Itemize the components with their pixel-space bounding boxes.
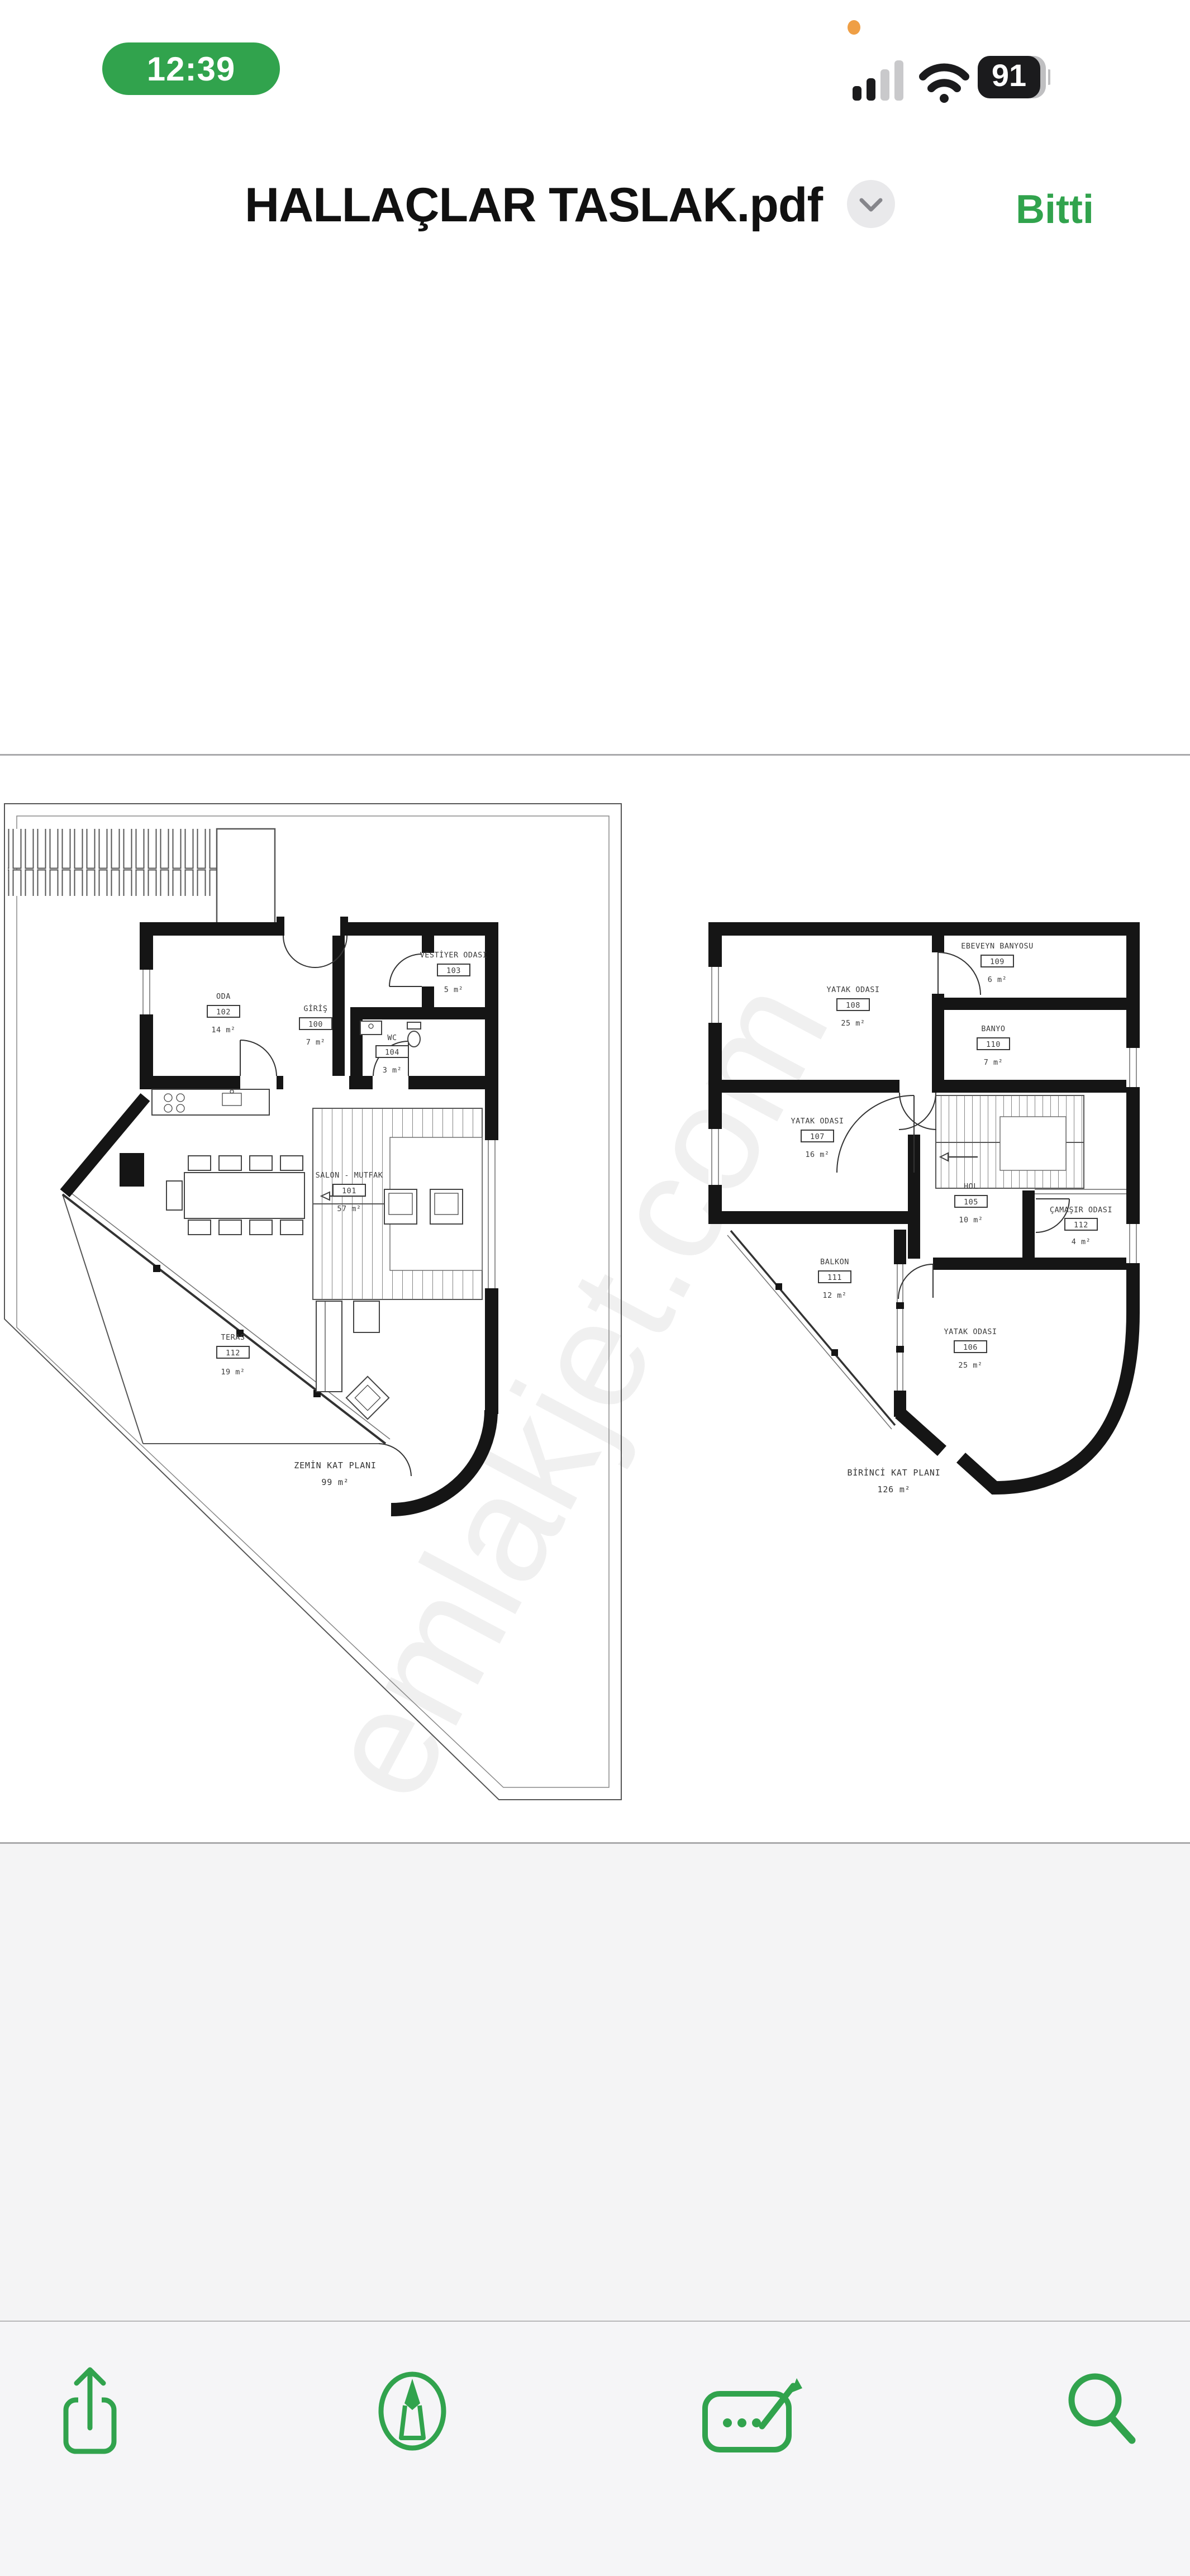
- plan-title: ZEMİN KAT PLANI 99 m²: [294, 1460, 376, 1487]
- sofa-set: [316, 1301, 389, 1419]
- plan-title: BİRİNCİ KAT PLANI 126 m²: [847, 1467, 940, 1495]
- room-label: YATAK ODASI 107 16 m²: [791, 1117, 844, 1159]
- signature-form-icon: [705, 2378, 802, 2450]
- svg-text:WC: WC: [387, 1033, 397, 1042]
- svg-text:VESTİYER ODASI: VESTİYER ODASI: [420, 950, 488, 960]
- page-separator: [0, 754, 1190, 756]
- search-button[interactable]: [1028, 2322, 1173, 2489]
- svg-text:ODA: ODA: [216, 992, 231, 1001]
- svg-text:108: 108: [846, 1001, 860, 1010]
- svg-text:57 m²: 57 m²: [337, 1204, 361, 1213]
- svg-text:BANYO: BANYO: [981, 1024, 1005, 1033]
- svg-text:YATAK ODASI: YATAK ODASI: [827, 985, 880, 994]
- svg-text:25 m²: 25 m²: [958, 1361, 982, 1370]
- room-label: TERAS 112 19 m²: [217, 1333, 249, 1377]
- svg-text:107: 107: [810, 1132, 825, 1141]
- status-time: 12:39: [147, 50, 235, 88]
- room-label: YATAK ODASI 108 25 m²: [827, 985, 880, 1028]
- svg-text:ÇAMAŞIR ODASI: ÇAMAŞIR ODASI: [1050, 1206, 1112, 1215]
- status-time-pill[interactable]: 12:39: [102, 42, 280, 95]
- first-floor-plan: YATAK ODASI 108 25 m² EBEVEYN BANYOSU 10…: [698, 894, 1190, 1520]
- svg-text:112: 112: [1074, 1221, 1088, 1230]
- room-label: ODA 102 14 m²: [207, 992, 240, 1035]
- search-icon: [1072, 2376, 1132, 2440]
- svg-text:19 m²: 19 m²: [221, 1368, 245, 1377]
- svg-text:TERAS: TERAS: [221, 1333, 245, 1342]
- svg-text:YATAK ODASI: YATAK ODASI: [791, 1117, 844, 1126]
- svg-text:103: 103: [446, 966, 461, 975]
- signal-icon: [853, 60, 903, 101]
- chevron-down-icon: [847, 180, 895, 228]
- bottom-toolbar: [0, 2321, 1190, 2576]
- share-button[interactable]: [17, 2322, 162, 2489]
- markup-pen-icon: [381, 2374, 444, 2448]
- svg-text:BİRİNCİ KAT PLANI: BİRİNCİ KAT PLANI: [847, 1467, 940, 1478]
- stairs: [936, 1095, 1126, 1194]
- room-label: GİRİŞ 100 7 m²: [299, 1003, 332, 1047]
- svg-text:6 m²: 6 m²: [988, 975, 1007, 984]
- kitchen-counter: [152, 1089, 269, 1115]
- svg-text:BALKON: BALKON: [820, 1258, 849, 1266]
- svg-text:4 m²: 4 m²: [1072, 1237, 1091, 1246]
- done-button[interactable]: Bitti: [1016, 187, 1094, 233]
- battery-percent: 91: [992, 58, 1026, 93]
- svg-text:101: 101: [342, 1187, 356, 1196]
- svg-text:SALON - MUTFAK: SALON - MUTFAK: [316, 1171, 383, 1180]
- svg-text:5 m²: 5 m²: [444, 985, 464, 994]
- svg-text:102: 102: [216, 1008, 231, 1017]
- svg-text:16 m²: 16 m²: [805, 1150, 829, 1159]
- svg-text:GİRİŞ: GİRİŞ: [303, 1003, 327, 1013]
- dining-set: [166, 1156, 304, 1235]
- svg-text:25 m²: 25 m²: [841, 1019, 865, 1028]
- mic-indicator-dot: [848, 20, 860, 35]
- svg-text:3 m²: 3 m²: [383, 1066, 402, 1075]
- svg-text:14 m²: 14 m²: [211, 1026, 235, 1035]
- svg-text:109: 109: [990, 957, 1005, 966]
- walls: [708, 922, 1140, 1488]
- room-label: BALKON 111 12 m²: [818, 1258, 851, 1300]
- svg-text:99 m²: 99 m²: [321, 1477, 349, 1487]
- document-title: HALLAÇLAR TASLAK.pdf: [245, 178, 822, 233]
- title-menu-button[interactable]: [847, 180, 895, 228]
- svg-text:104: 104: [385, 1048, 399, 1057]
- signature-form-button[interactable]: [683, 2322, 828, 2489]
- room-label: YATAK ODASI 106 25 m²: [944, 1327, 997, 1370]
- svg-text:10 m²: 10 m²: [959, 1216, 983, 1225]
- room-label: WC 104 3 m²: [376, 1033, 408, 1075]
- svg-text:HOL: HOL: [964, 1182, 978, 1191]
- svg-text:106: 106: [963, 1343, 978, 1352]
- svg-text:126 m²: 126 m²: [878, 1484, 911, 1495]
- ground-floor-plan: ODA 102 14 m² GİRİŞ 100 7 m² VESTİYER OD…: [0, 802, 626, 1802]
- svg-text:12 m²: 12 m²: [822, 1291, 846, 1300]
- room-label: EBEVEYN BANYOSU 109 6 m²: [961, 942, 1033, 984]
- wifi-icon: [923, 67, 965, 103]
- status-icons: 91: [849, 51, 1050, 107]
- svg-text:112: 112: [226, 1349, 240, 1358]
- room-label: BANYO 110 7 m²: [977, 1024, 1010, 1067]
- pdf-viewer-screen: 12:39 91 HALLAÇLAR TASLAK.pdf Bitti: [0, 0, 1190, 2576]
- markup-button[interactable]: [340, 2322, 485, 2489]
- svg-text:ZEMİN KAT PLANI: ZEMİN KAT PLANI: [294, 1460, 376, 1470]
- svg-text:7 m²: 7 m²: [984, 1058, 1003, 1067]
- svg-text:110: 110: [986, 1040, 1001, 1049]
- svg-text:7 m²: 7 m²: [306, 1038, 326, 1047]
- svg-text:105: 105: [964, 1198, 978, 1207]
- room-label: ÇAMAŞIR ODASI 112 4 m²: [1050, 1206, 1112, 1246]
- svg-text:EBEVEYN BANYOSU: EBEVEYN BANYOSU: [961, 942, 1033, 951]
- svg-text:111: 111: [827, 1273, 842, 1282]
- share-icon: [66, 2370, 114, 2451]
- svg-text:YATAK ODASI: YATAK ODASI: [944, 1327, 997, 1336]
- svg-text:100: 100: [308, 1020, 323, 1029]
- battery-icon: 91: [978, 56, 1050, 98]
